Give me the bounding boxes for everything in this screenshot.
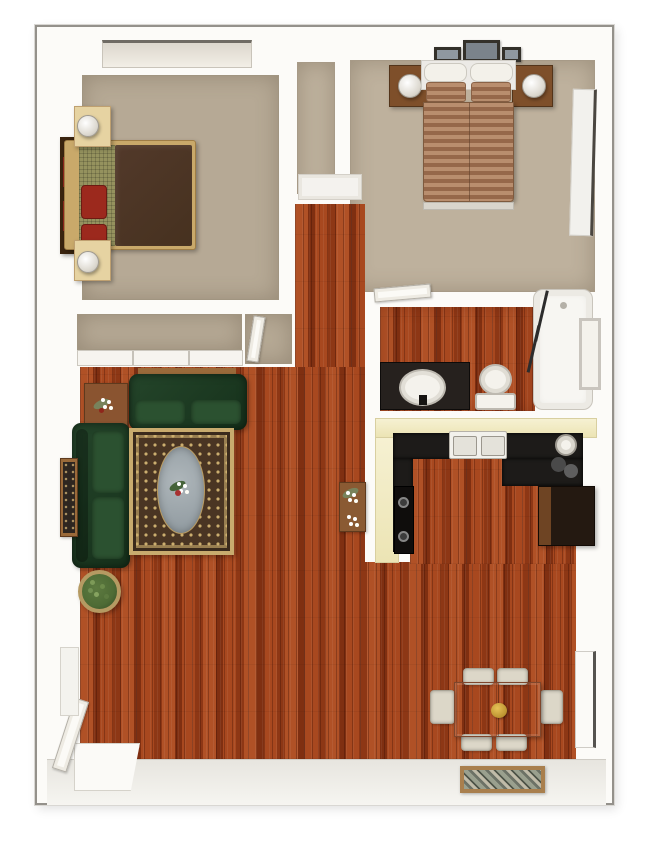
centerpiece-icon (491, 703, 507, 718)
round-appliance-icon (555, 434, 577, 456)
left-wall-panel (60, 647, 79, 716)
hall-closet-door (298, 174, 362, 200)
loveseat (129, 374, 247, 430)
red-pillow (81, 185, 107, 219)
range-cooktop (394, 486, 414, 554)
end-table (84, 383, 128, 426)
coffee-maker-part (564, 464, 578, 478)
flower-stand (339, 482, 366, 532)
flowers-icon (346, 491, 350, 495)
burner-icon (398, 531, 409, 542)
sink-bowl (453, 436, 477, 456)
dining-chair (430, 690, 455, 724)
wall-picture-icon (463, 40, 500, 62)
wall-door-panel (575, 651, 596, 748)
striped-blanket (423, 102, 514, 202)
sink-bowl (481, 436, 505, 456)
rug-flower-red (175, 490, 181, 496)
dining-table (454, 682, 541, 737)
table-lamp-icon (398, 74, 422, 98)
door-mat (460, 766, 545, 793)
seat-cushion (191, 400, 241, 424)
coffee-maker-icon (551, 455, 581, 483)
drain-icon (560, 302, 567, 309)
rug-flowers-icon (177, 482, 181, 486)
flowers-icon (347, 515, 351, 519)
bed-right (421, 60, 516, 212)
white-pillow (470, 63, 513, 82)
leaf-icon (341, 486, 360, 500)
seat-cushion (92, 431, 124, 493)
area-rug (129, 428, 234, 555)
accent-pillow (471, 82, 511, 102)
burner-icon (398, 497, 409, 508)
seat-cushion (135, 400, 185, 424)
nightstand-right (512, 65, 553, 107)
door-panel (569, 89, 597, 237)
toilet-bowl (479, 364, 512, 395)
closet-sliding-doors (77, 350, 243, 366)
nightstand-bottom (74, 240, 111, 281)
nightstand-top (74, 106, 111, 147)
refrigerator (538, 486, 595, 546)
closet-floor (77, 314, 242, 350)
bed-left (64, 140, 196, 250)
rug-medallion (157, 446, 205, 534)
table-lamp-icon (77, 251, 99, 273)
bed-blanket (115, 145, 192, 246)
footboard (423, 202, 514, 210)
table-lamp-icon (522, 74, 546, 98)
floor-plan-image (0, 0, 650, 844)
berry-icon (99, 408, 104, 413)
foliage-icon (90, 580, 95, 585)
floor-plan (35, 25, 614, 805)
double-sink (449, 431, 507, 459)
sofa (72, 423, 130, 568)
seat-cushion (92, 497, 124, 559)
floral-decor-icon (101, 398, 105, 402)
faucet-icon (419, 395, 427, 405)
table-lamp-icon (77, 115, 99, 137)
console-decor-top (63, 462, 75, 533)
dining-chair (540, 690, 563, 724)
toilet-tank (475, 393, 516, 410)
console-table (60, 458, 78, 537)
potted-plant (78, 570, 121, 613)
hallway-floor (295, 204, 365, 376)
white-pillow (424, 63, 467, 82)
vanity (380, 362, 470, 410)
accent-pillow (426, 82, 466, 102)
window-icon (102, 40, 252, 68)
entry-tile (74, 743, 140, 791)
bathroom-window-icon (579, 318, 601, 390)
